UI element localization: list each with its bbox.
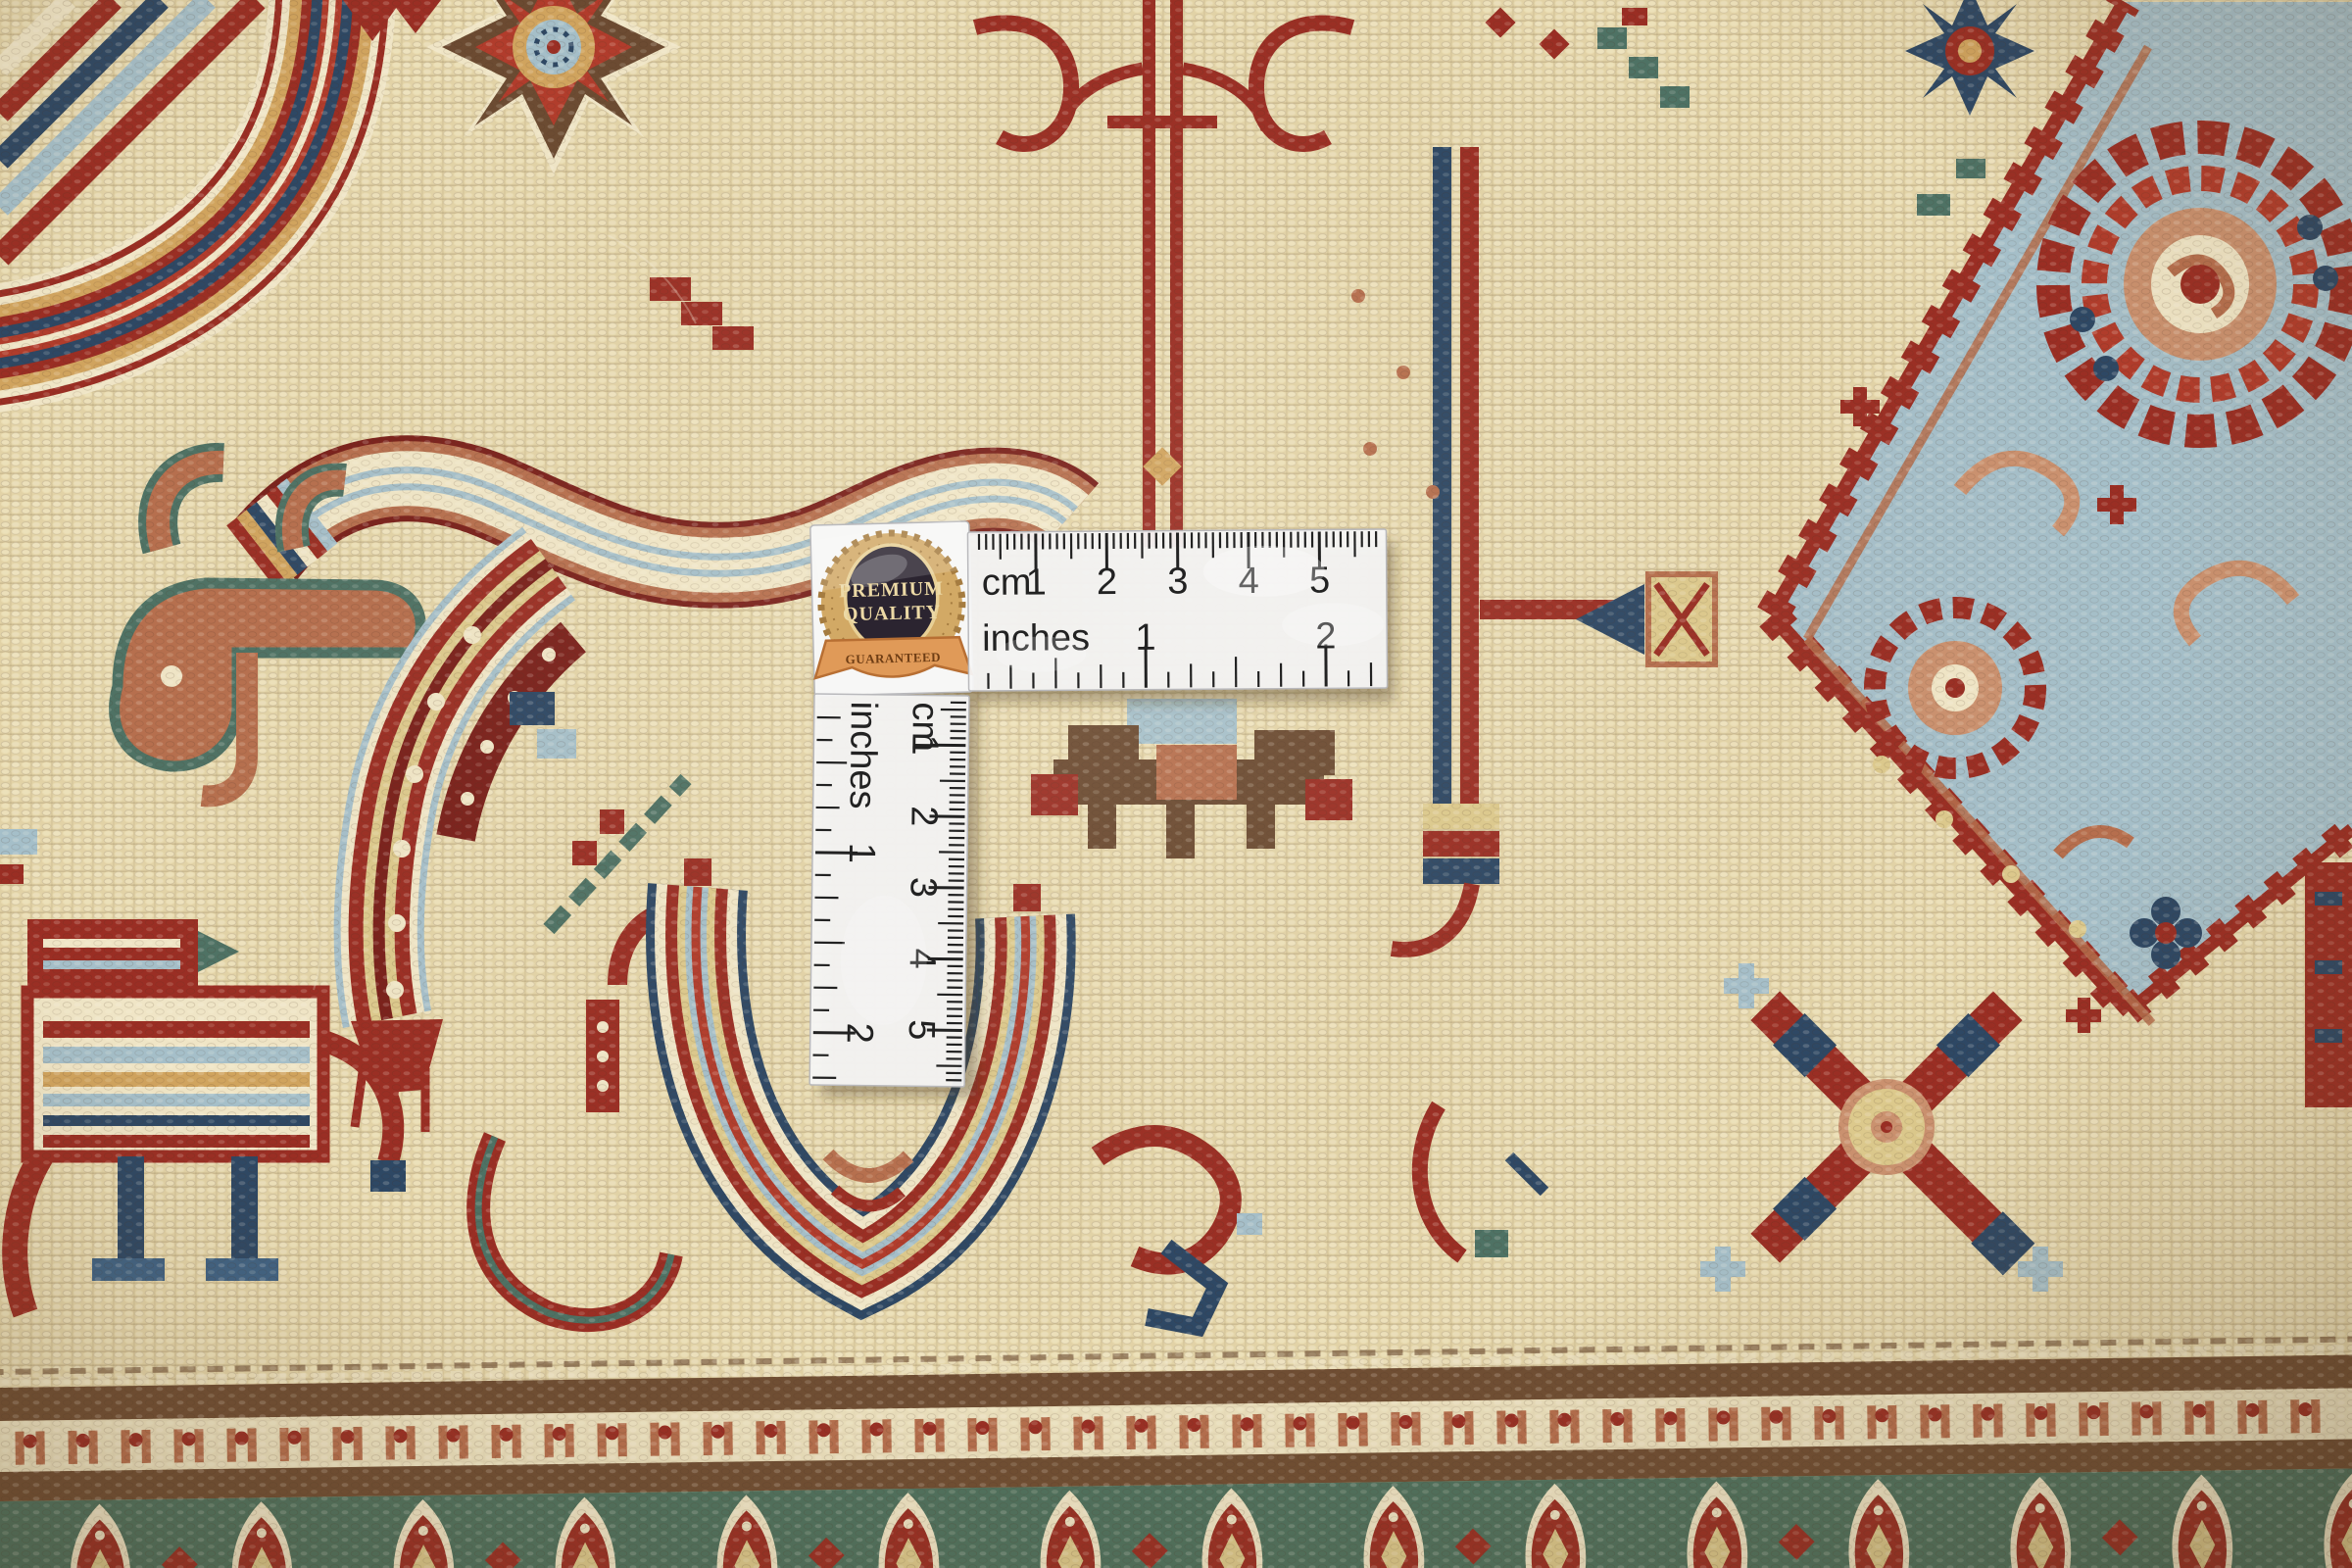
photo-stage: PREMIUM QUALITY GUARANTEED cm inches 123… bbox=[0, 0, 2352, 1568]
ruler-number: 3 bbox=[902, 877, 943, 899]
ruler-number: 3 bbox=[1167, 561, 1188, 602]
badge-title-line2: QUALITY bbox=[843, 602, 942, 626]
ruler-number: 2 bbox=[839, 1022, 880, 1044]
ruler-number: 1 bbox=[841, 843, 882, 864]
ruler-h-cm-label: cm bbox=[982, 563, 1032, 604]
ruler-number: 1 bbox=[1135, 617, 1155, 659]
ruler-number: 2 bbox=[903, 806, 944, 827]
ruler-v-inches-label: inches bbox=[842, 701, 884, 808]
ruler-number: 2 bbox=[1097, 562, 1117, 603]
rug-photo: PREMIUM QUALITY GUARANTEED cm inches 123… bbox=[0, 0, 2352, 1568]
measuring-ruler-horizontal: cm inches 1234512 bbox=[967, 529, 1387, 691]
badge-banner-text: GUARANTEED bbox=[845, 650, 941, 667]
photo-vignette bbox=[0, 0, 2352, 1568]
measuring-ruler-vertical: cm inches 1234512 bbox=[809, 694, 969, 1087]
ruler-number: 1 bbox=[904, 734, 945, 756]
premium-quality-badge: PREMIUM QUALITY GUARANTEED bbox=[810, 518, 974, 696]
ruler-number: 1 bbox=[1025, 562, 1046, 603]
ruler-number: 5 bbox=[901, 1019, 942, 1041]
